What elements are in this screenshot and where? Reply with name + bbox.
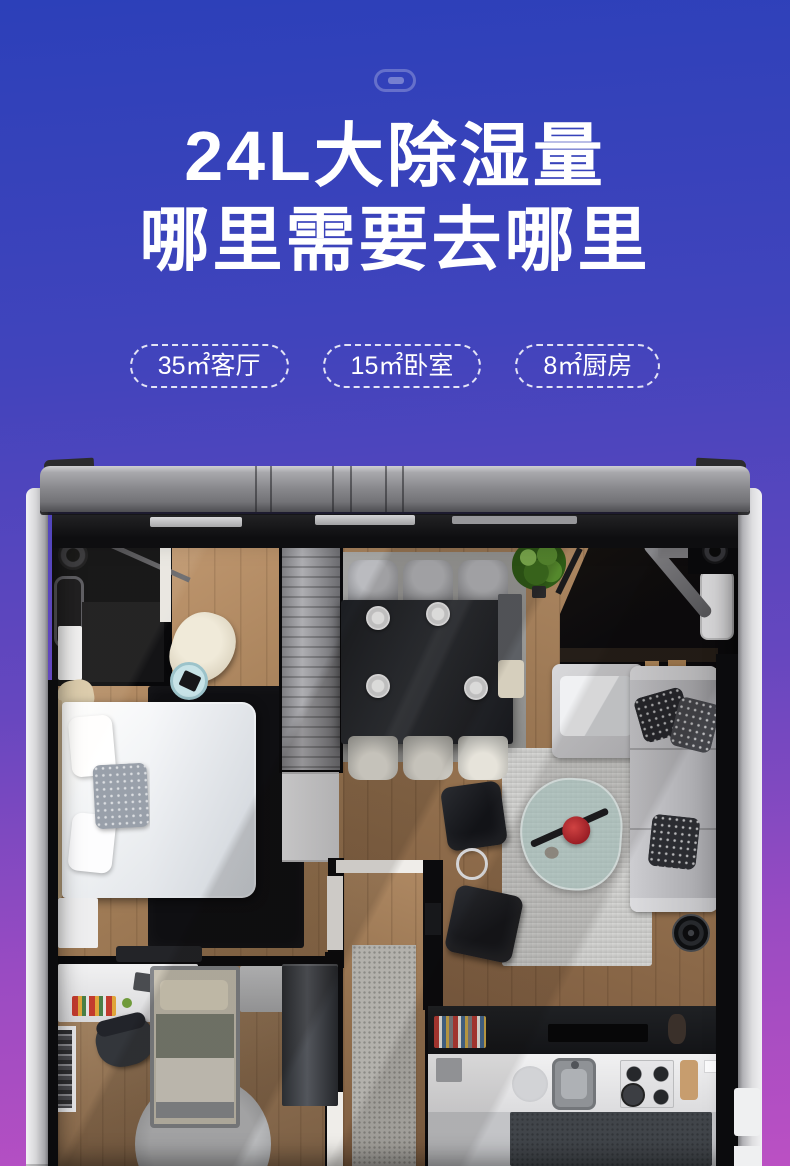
faucet [571,1061,579,1069]
right-door-frame [734,1146,760,1166]
badge-living-room: 35㎡客厅 [130,344,289,388]
bedroom-doorframe [160,536,171,622]
hallway-runner-rug [352,945,416,1166]
cooking-pan [621,1083,645,1107]
leather-pouf [440,780,508,852]
cutting-board [680,1060,698,1100]
floor-speaker [672,914,710,952]
teal-side-table [170,662,208,700]
bed-end-bench [116,946,202,962]
hallway-right-wall [423,860,443,1010]
promo-page: 24L大除湿量 哪里需要去哪里 35㎡客厅 15㎡卧室 8㎡厨房 [0,0,790,1166]
counter-stool [512,1066,548,1102]
sideboard-cushion [498,660,524,698]
stone-decor [544,846,559,859]
dark-desk [82,602,164,682]
study-wardrobe-dark [282,964,338,1106]
potted-plant [512,540,566,598]
gas-stove [620,1060,674,1108]
badge-kitchen: 8㎡厨房 [515,344,660,388]
badge-bedroom: 15㎡卧室 [323,344,482,388]
single-bed-pillow [160,980,228,1010]
capsule-icon-bar [388,77,404,84]
device-top-bar [40,466,750,512]
single-bed [150,966,240,1128]
console-soundbar [548,1024,648,1042]
ceiling-lintel [150,517,242,527]
chaise-cushion [560,676,632,736]
ceiling-lintel [452,516,577,524]
place-setting [366,606,390,630]
kitchen-counter [428,1054,736,1112]
duvet [150,704,254,896]
study-side-table [240,966,288,1012]
device-left-edge [26,488,48,1166]
console-vase [668,1014,686,1044]
tv-console [428,1006,718,1054]
patterned-pillow [647,814,700,871]
kitchen-sink [552,1058,596,1110]
accent-pillow-gray [92,763,149,830]
headline-line1: 24L大除湿量 [0,118,790,195]
living-top-wall [560,648,718,662]
sofa-arm [630,666,718,680]
headline-line2: 哪里需要去哪里 [0,202,790,279]
nightstand-bottom [58,898,98,948]
sofa-arm [630,898,718,912]
left-inner-wall [48,680,58,1166]
sideboard-end [498,594,522,666]
wall-box [436,1058,462,1082]
single-bed-foot [156,1102,234,1118]
dining-chair [458,736,508,780]
door-frame-jamb [327,876,343,950]
wardrobe-gray [282,546,340,770]
dining-chair [403,736,453,780]
desk-books [72,996,116,1016]
nightstand-top [58,626,82,680]
origami-decor [178,670,201,692]
wall-mounted-unit [425,903,441,935]
single-bed-duvet [156,1058,234,1102]
dining-chair [348,736,398,780]
right-door-frame [734,1088,760,1136]
hall-cabinet-white [282,772,339,862]
door-frame-lintel [336,860,426,873]
console-books [434,1016,486,1048]
device-right-edge [738,488,762,1166]
ceiling-lintel [315,515,415,525]
desk-plant-dot [122,998,132,1008]
plant-pot [532,586,546,598]
sink-basin [561,1069,587,1099]
area-badges: 35㎡客厅 15㎡卧室 8㎡厨房 [0,344,790,388]
place-setting [366,674,390,698]
place-setting [426,602,450,626]
single-bed-blanket [156,1014,234,1058]
kitchen-island-mat [510,1112,712,1166]
leather-pouf [444,884,525,965]
ring-decor [456,848,488,880]
place-setting [464,676,488,700]
master-bed [62,702,256,898]
